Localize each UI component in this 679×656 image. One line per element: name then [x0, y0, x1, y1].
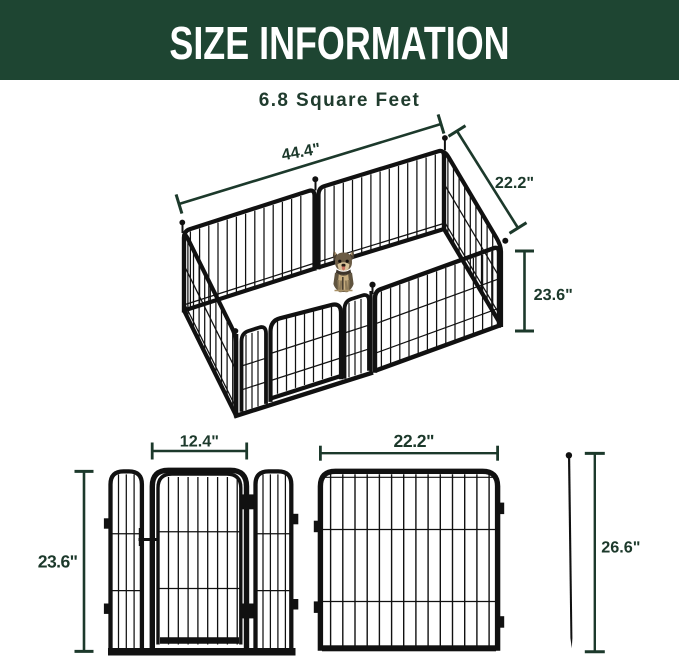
svg-text:26.6": 26.6" — [601, 538, 640, 556]
svg-text:23.6": 23.6" — [38, 551, 78, 571]
svg-text:44.4": 44.4" — [280, 140, 322, 165]
svg-text:23.6": 23.6" — [534, 286, 573, 304]
svg-text:22.2": 22.2" — [495, 174, 534, 192]
svg-text:22.2": 22.2" — [394, 431, 435, 451]
svg-text:12.4": 12.4" — [180, 433, 219, 451]
